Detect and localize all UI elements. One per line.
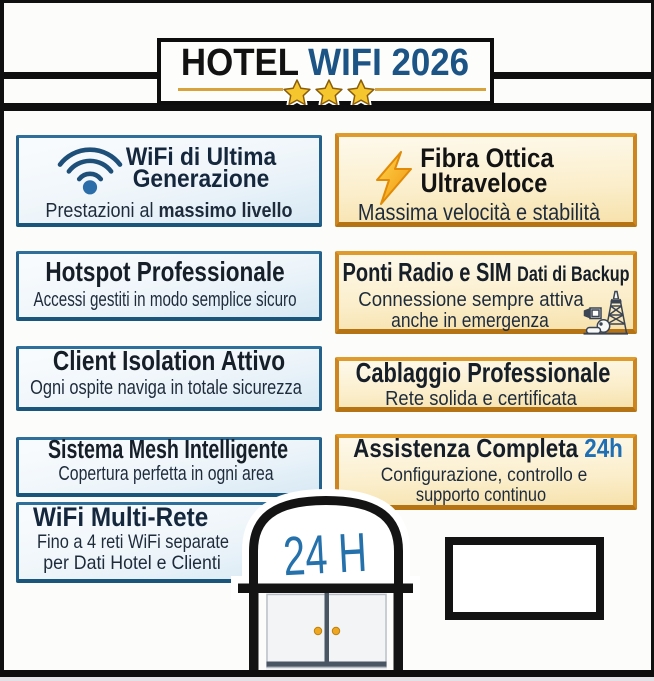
- svg-text:24 H: 24 H: [282, 523, 369, 588]
